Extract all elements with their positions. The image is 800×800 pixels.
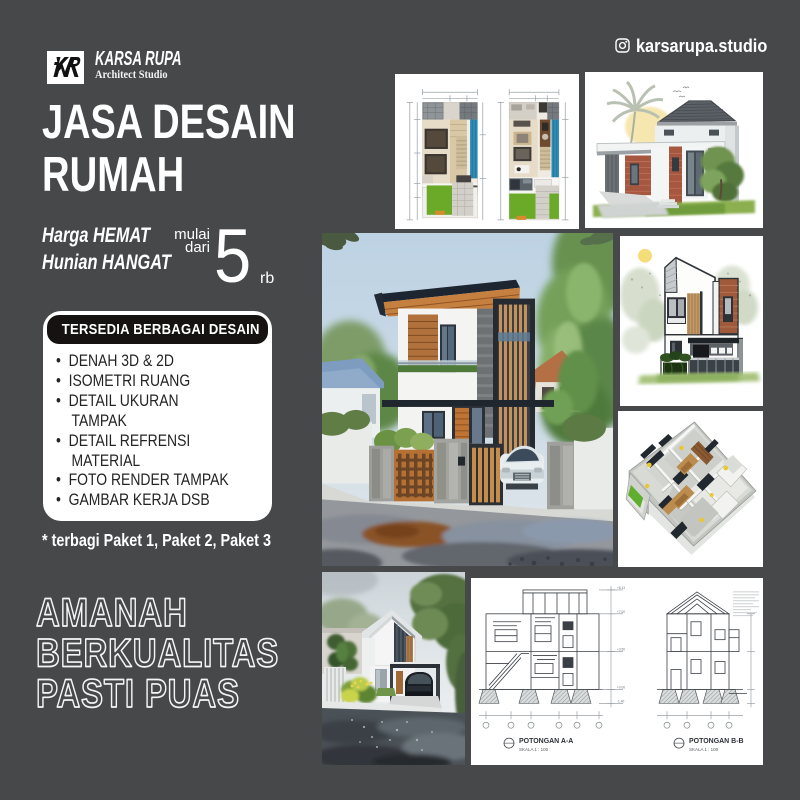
svg-text:SKALA 1 : 100: SKALA 1 : 100 <box>689 747 719 752</box>
svg-text:+0.00: +0.00 <box>617 685 625 689</box>
svg-text:+3.50: +3.50 <box>617 648 625 652</box>
svg-text:POTONGAN A-A: POTONGAN A-A <box>519 738 573 745</box>
svg-text:-1.40: -1.40 <box>617 699 625 703</box>
svg-text:BERKUALITAS: BERKUALITAS <box>36 632 279 676</box>
svg-text:PASTI PUAS: PASTI PUAS <box>36 672 240 716</box>
svg-text:+7.00: +7.00 <box>617 610 625 614</box>
svg-text:POTONGAN B-B: POTONGAN B-B <box>689 738 744 745</box>
svg-text:AMANAH: AMANAH <box>36 592 188 635</box>
svg-text:+8.13: +8.13 <box>617 586 625 590</box>
svg-text:SKALA 1 : 100: SKALA 1 : 100 <box>519 747 549 752</box>
